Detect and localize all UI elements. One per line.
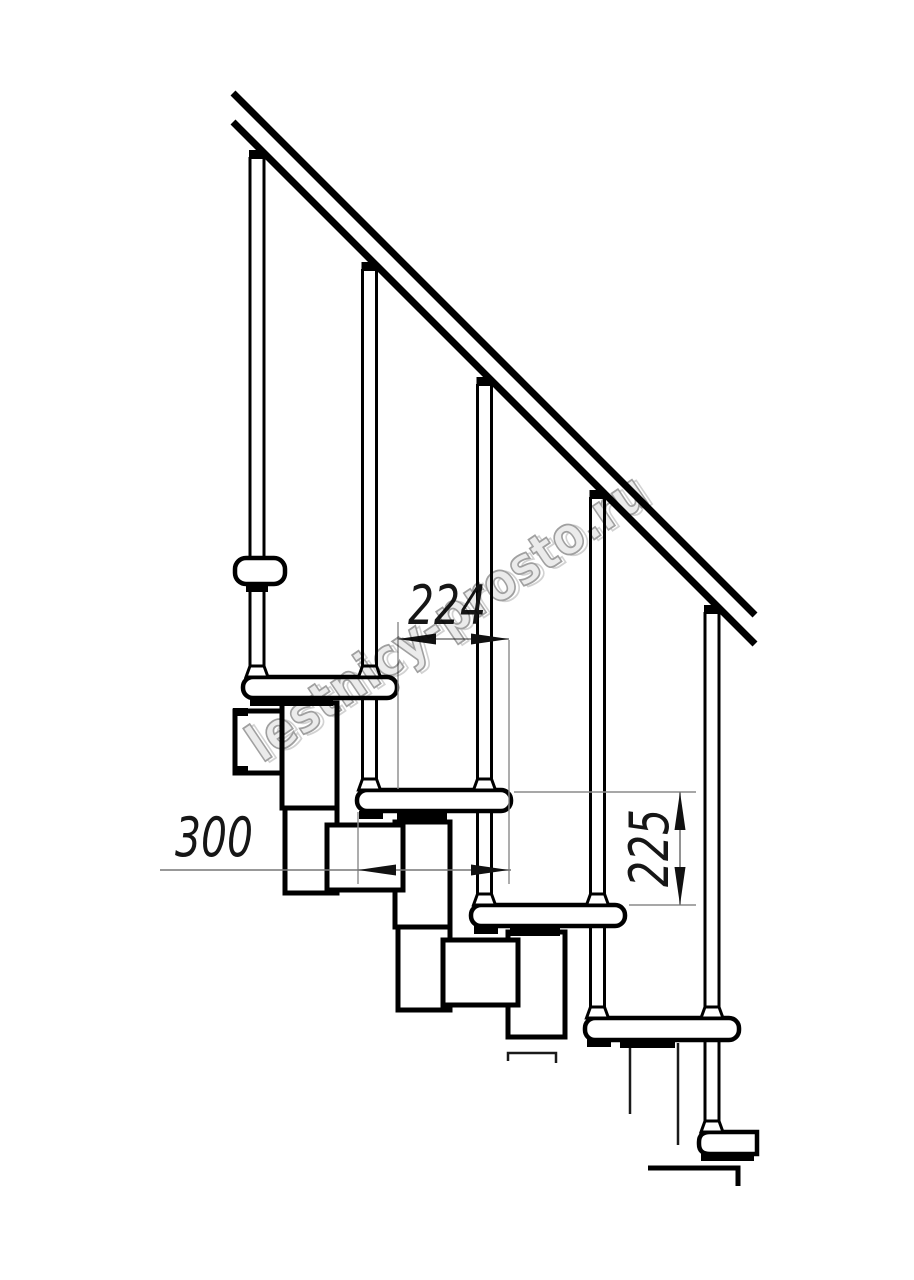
baluster-collar bbox=[587, 894, 609, 905]
plate-bolt-mark bbox=[233, 766, 248, 774]
tread-2 bbox=[357, 790, 511, 811]
baluster-collar bbox=[474, 894, 496, 905]
baluster-collar bbox=[359, 779, 381, 790]
baluster-collar bbox=[701, 1007, 723, 1018]
wall-bracket-mount bbox=[246, 584, 268, 592]
module-connector-box bbox=[443, 940, 518, 1005]
staircase-technical-drawing: 224 300 225 lestnicy-prosto.ru lestnicy-… bbox=[0, 0, 914, 1280]
baluster-collar bbox=[587, 1007, 609, 1018]
tread-flange bbox=[359, 811, 383, 819]
tread-flange bbox=[510, 926, 560, 936]
tread-flange bbox=[397, 811, 447, 822]
dimension-label-riser: 225 bbox=[618, 809, 681, 887]
tread-3 bbox=[471, 905, 625, 926]
baluster-collar bbox=[474, 779, 496, 790]
tread-flange bbox=[474, 926, 498, 934]
tread-flange bbox=[587, 1039, 611, 1047]
wall-bracket-body bbox=[235, 558, 285, 584]
tread-flange bbox=[701, 1152, 754, 1161]
drawing-canvas: 224 300 225 lestnicy-prosto.ru lestnicy-… bbox=[0, 0, 914, 1280]
tread-4 bbox=[585, 1018, 739, 1040]
baluster-collar bbox=[246, 666, 268, 677]
module-connector-box bbox=[327, 825, 403, 890]
dimension-label-tread-depth: 300 bbox=[175, 806, 253, 869]
baluster-collar bbox=[701, 1121, 723, 1132]
tread-5-partial bbox=[699, 1132, 757, 1154]
plate-bolt-mark bbox=[233, 708, 248, 716]
tread-flange bbox=[620, 1039, 675, 1048]
